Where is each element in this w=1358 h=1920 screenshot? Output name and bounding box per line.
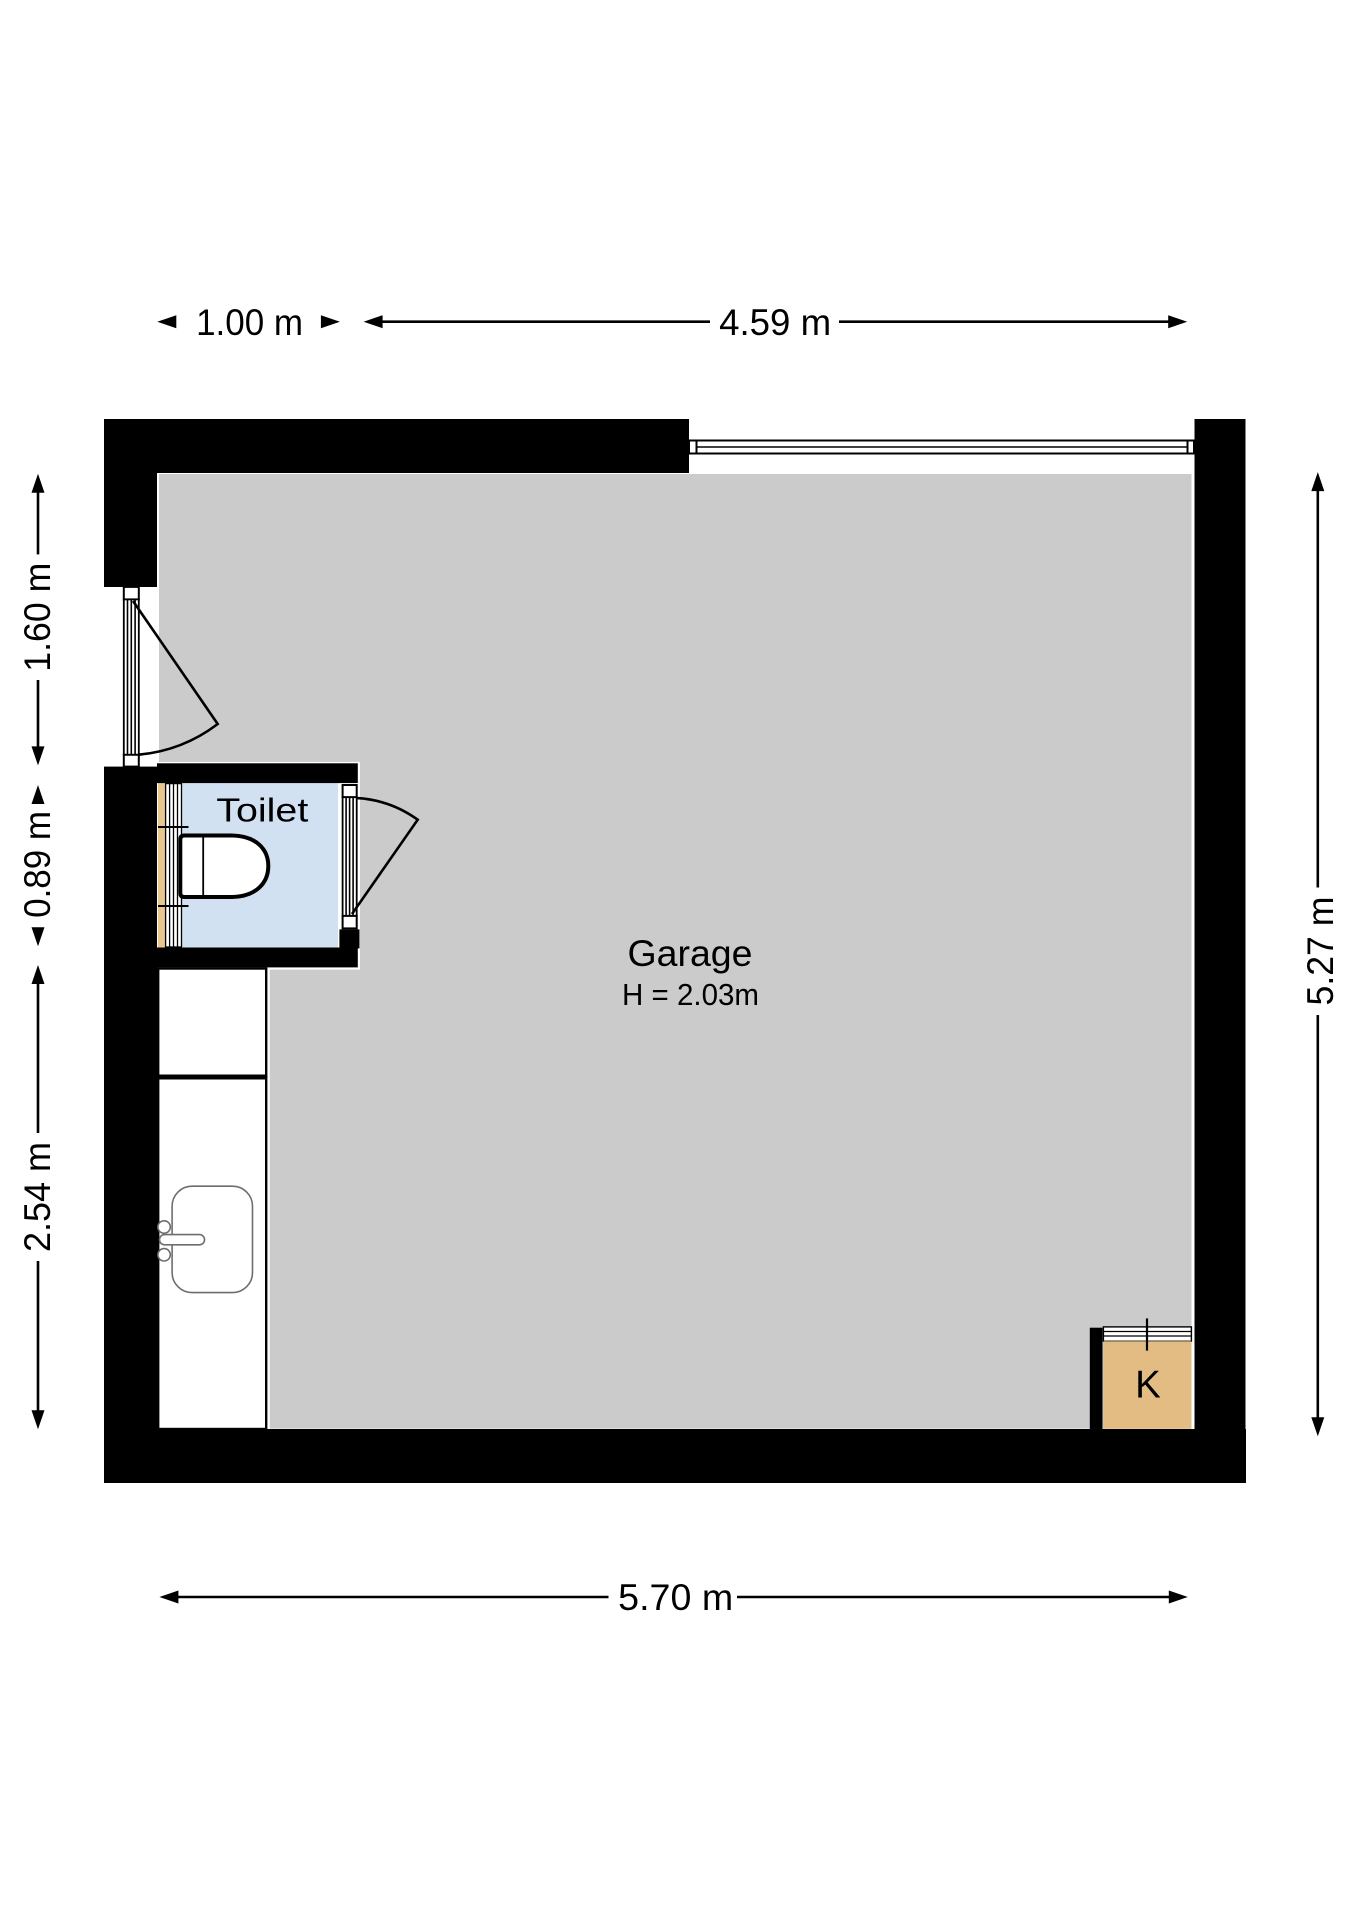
svg-text:H = 2.03m: H = 2.03m (622, 977, 759, 1012)
svg-text:Toilet: Toilet (216, 791, 308, 828)
svg-text:0.89 m: 0.89 m (16, 811, 58, 918)
svg-text:Garage: Garage (628, 933, 753, 974)
svg-text:5.70 m: 5.70 m (618, 1576, 733, 1618)
svg-text:5.27 m: 5.27 m (1299, 897, 1341, 1006)
svg-text:1.00 m: 1.00 m (196, 301, 303, 343)
svg-text:1.60 m: 1.60 m (16, 563, 58, 672)
svg-text:4.59 m: 4.59 m (719, 301, 831, 343)
svg-text:K: K (1135, 1364, 1161, 1407)
svg-text:2.54 m: 2.54 m (16, 1142, 58, 1252)
